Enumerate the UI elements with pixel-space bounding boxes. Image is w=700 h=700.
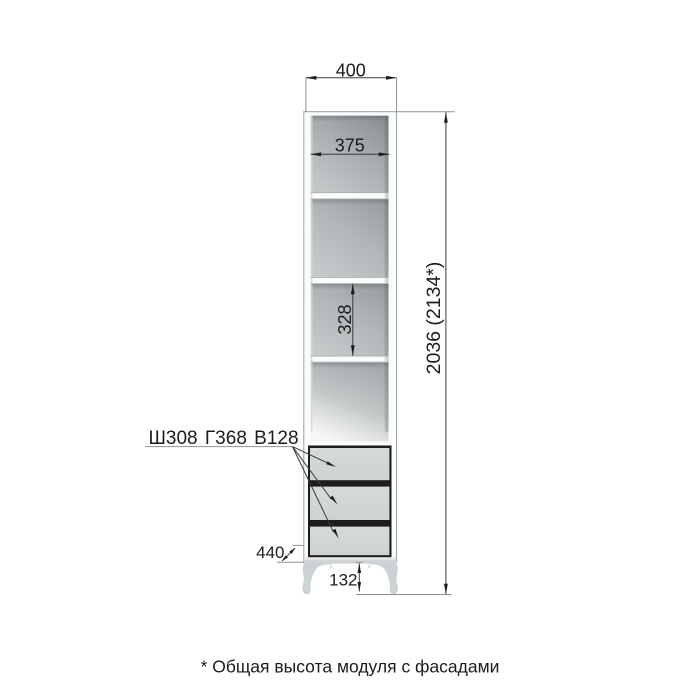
svg-text:440: 440 (256, 543, 284, 562)
svg-text:* Общая высота модуля с фасада: * Общая высота модуля с фасадами (201, 656, 500, 676)
svg-text:2036 (2134*): 2036 (2134*) (423, 262, 445, 375)
svg-text:328: 328 (335, 304, 355, 334)
svg-text:400: 400 (336, 60, 366, 80)
svg-text:Ш308 Г368 В128: Ш308 Г368 В128 (149, 428, 299, 449)
svg-text:375: 375 (335, 135, 365, 155)
svg-text:132: 132 (329, 571, 357, 590)
